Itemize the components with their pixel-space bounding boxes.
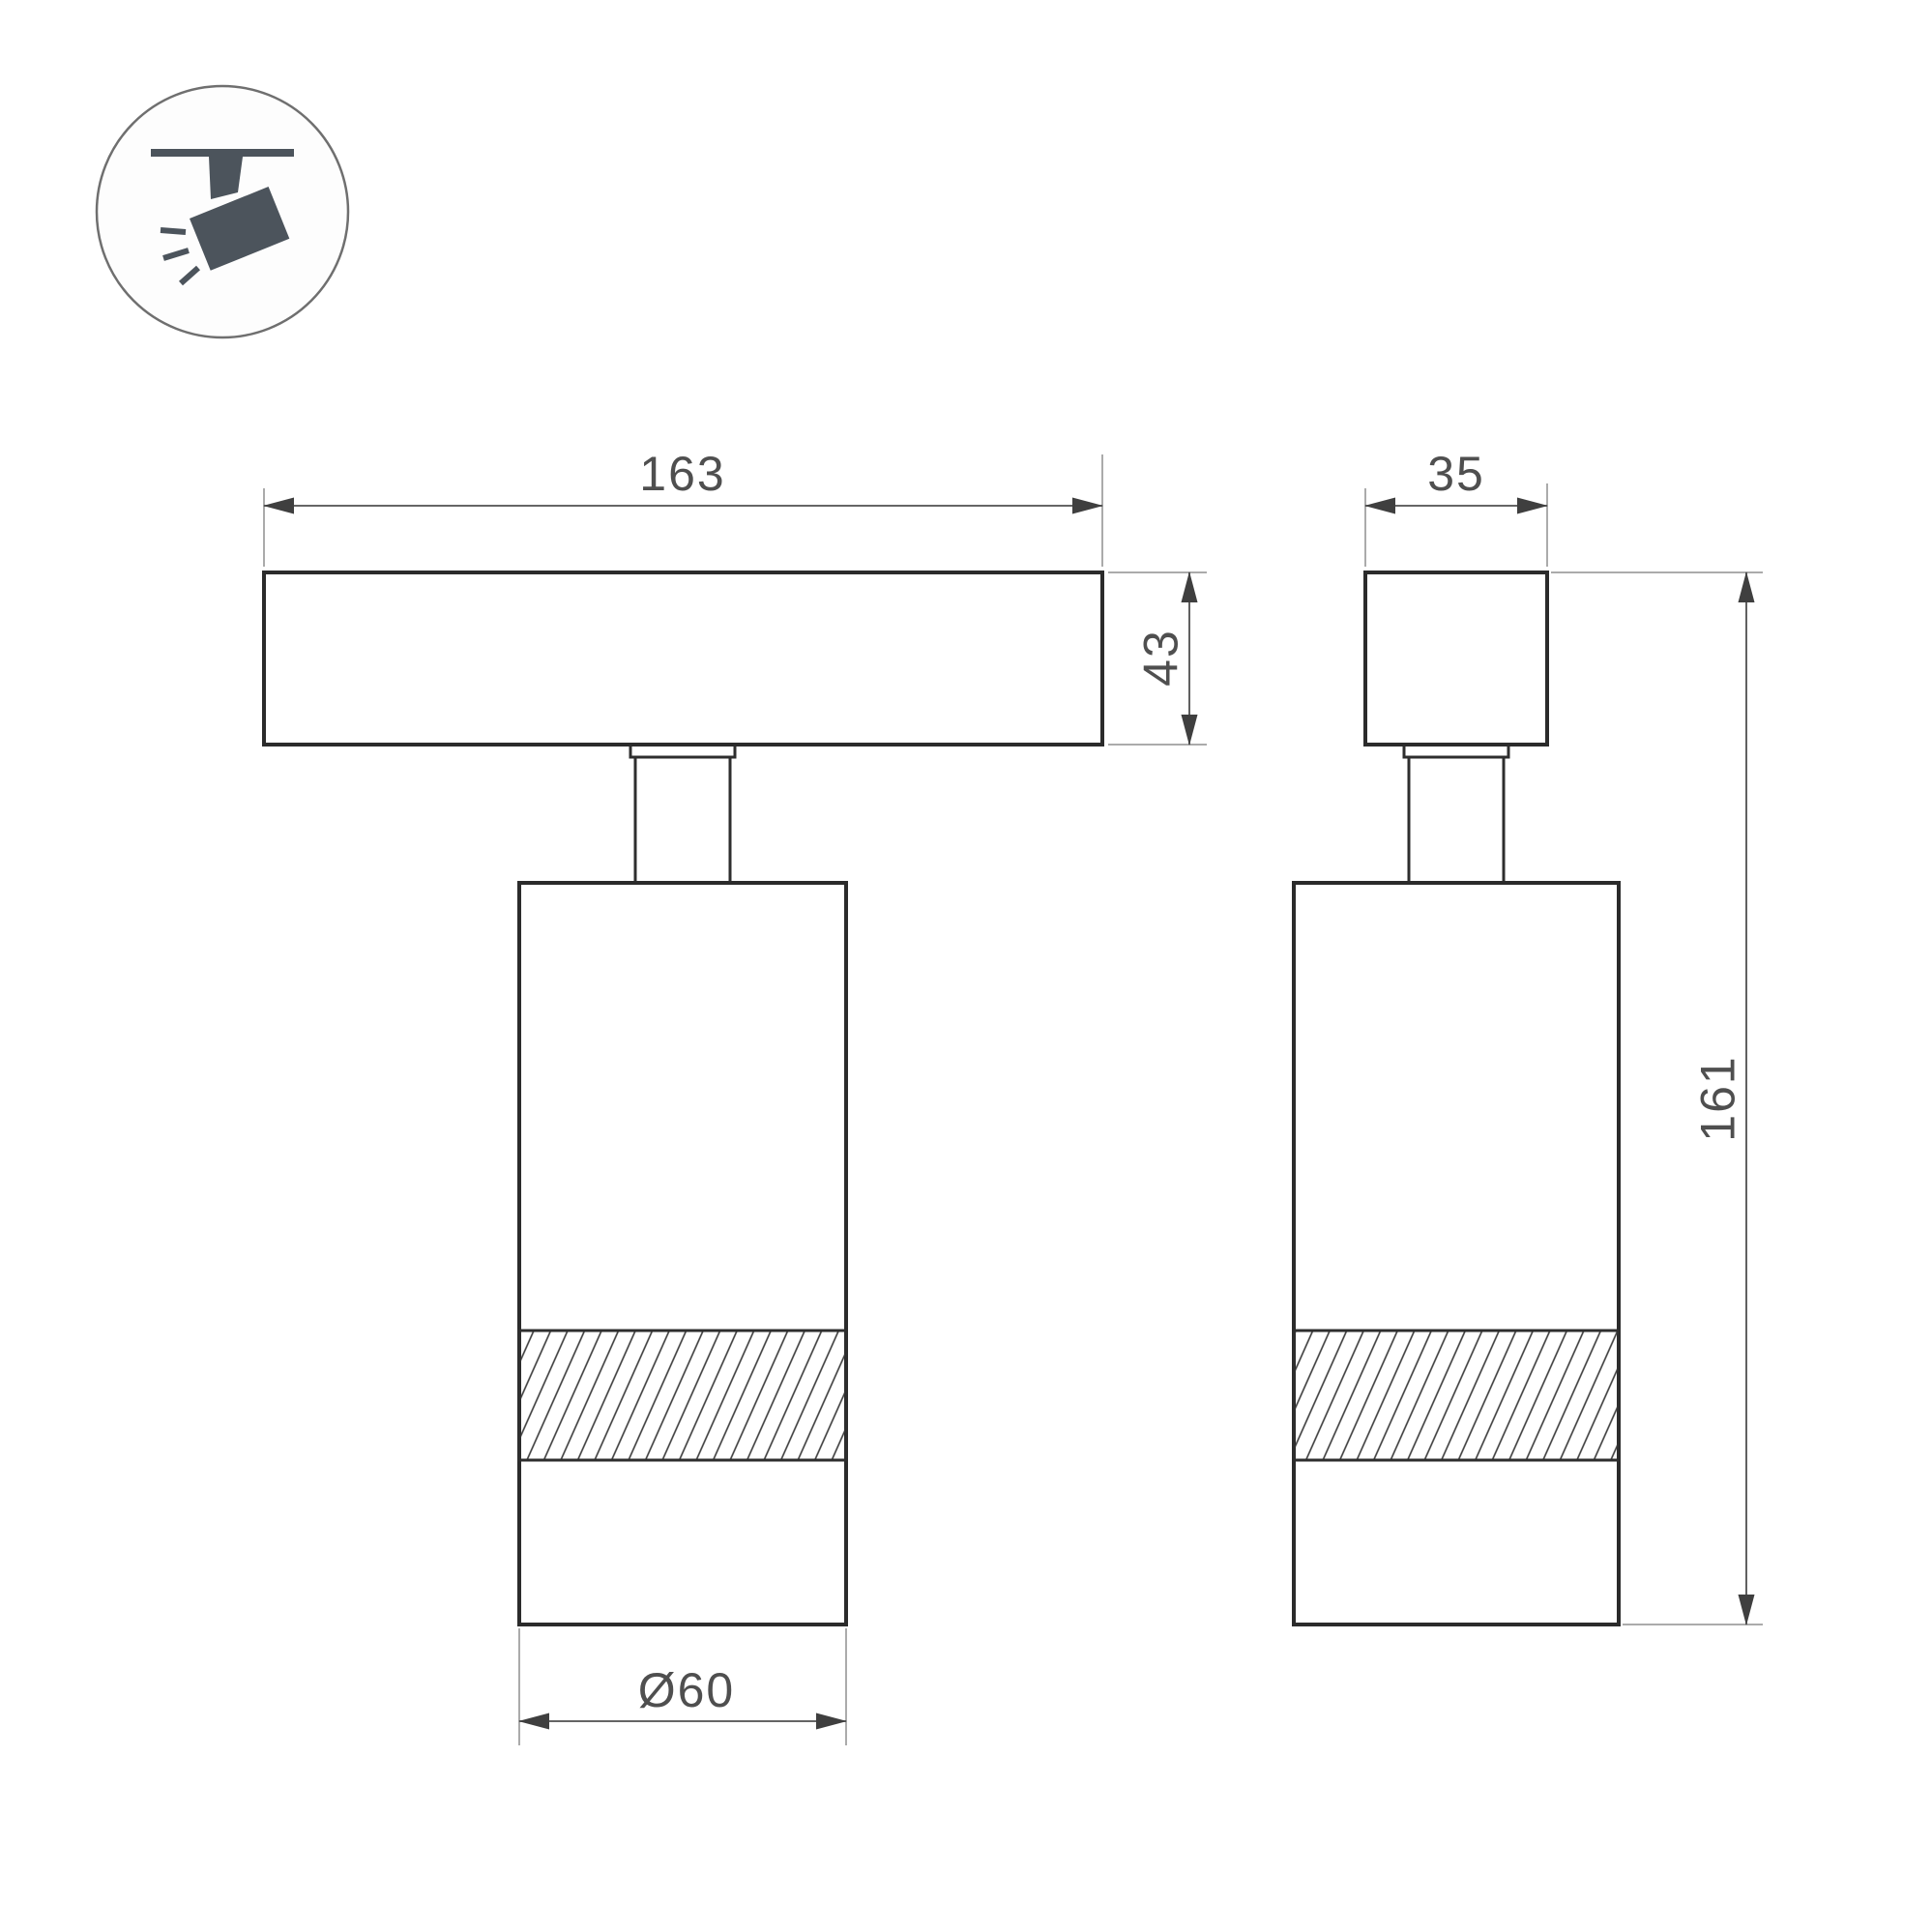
- front-body-cylinder: [519, 883, 846, 1625]
- dim-label-side-track-depth: 35: [1427, 447, 1485, 501]
- side-stem: [1409, 757, 1504, 883]
- technical-drawing: 163 43 Ø60 35: [0, 0, 1932, 1932]
- dim-label-front-track-height: 43: [1134, 629, 1188, 687]
- side-knurled-ring: [1294, 1331, 1619, 1460]
- dim-label-front-track-width: 163: [639, 447, 725, 501]
- side-body-cylinder: [1294, 883, 1619, 1625]
- front-view: [264, 572, 1102, 1625]
- dim-front-track-width: 163: [264, 447, 1102, 567]
- dim-front-body-diameter: Ø60: [519, 1628, 846, 1745]
- dim-front-track-height: 43: [1108, 572, 1207, 745]
- track-light-icon: [97, 86, 348, 337]
- icon-ray-1: [161, 230, 186, 232]
- front-knurled-ring: [519, 1331, 846, 1460]
- dim-label-front-body-diameter: Ø60: [638, 1663, 736, 1717]
- dim-label-side-total-height: 161: [1691, 1055, 1745, 1141]
- front-track-bar: [264, 572, 1102, 745]
- front-stem: [635, 757, 730, 883]
- drawing-canvas: 163 43 Ø60 35: [0, 0, 1932, 1932]
- side-view: [1294, 572, 1619, 1625]
- dim-side-track-depth: 35: [1365, 447, 1547, 567]
- side-track-block: [1365, 572, 1547, 745]
- icon-ceiling-track: [151, 149, 294, 157]
